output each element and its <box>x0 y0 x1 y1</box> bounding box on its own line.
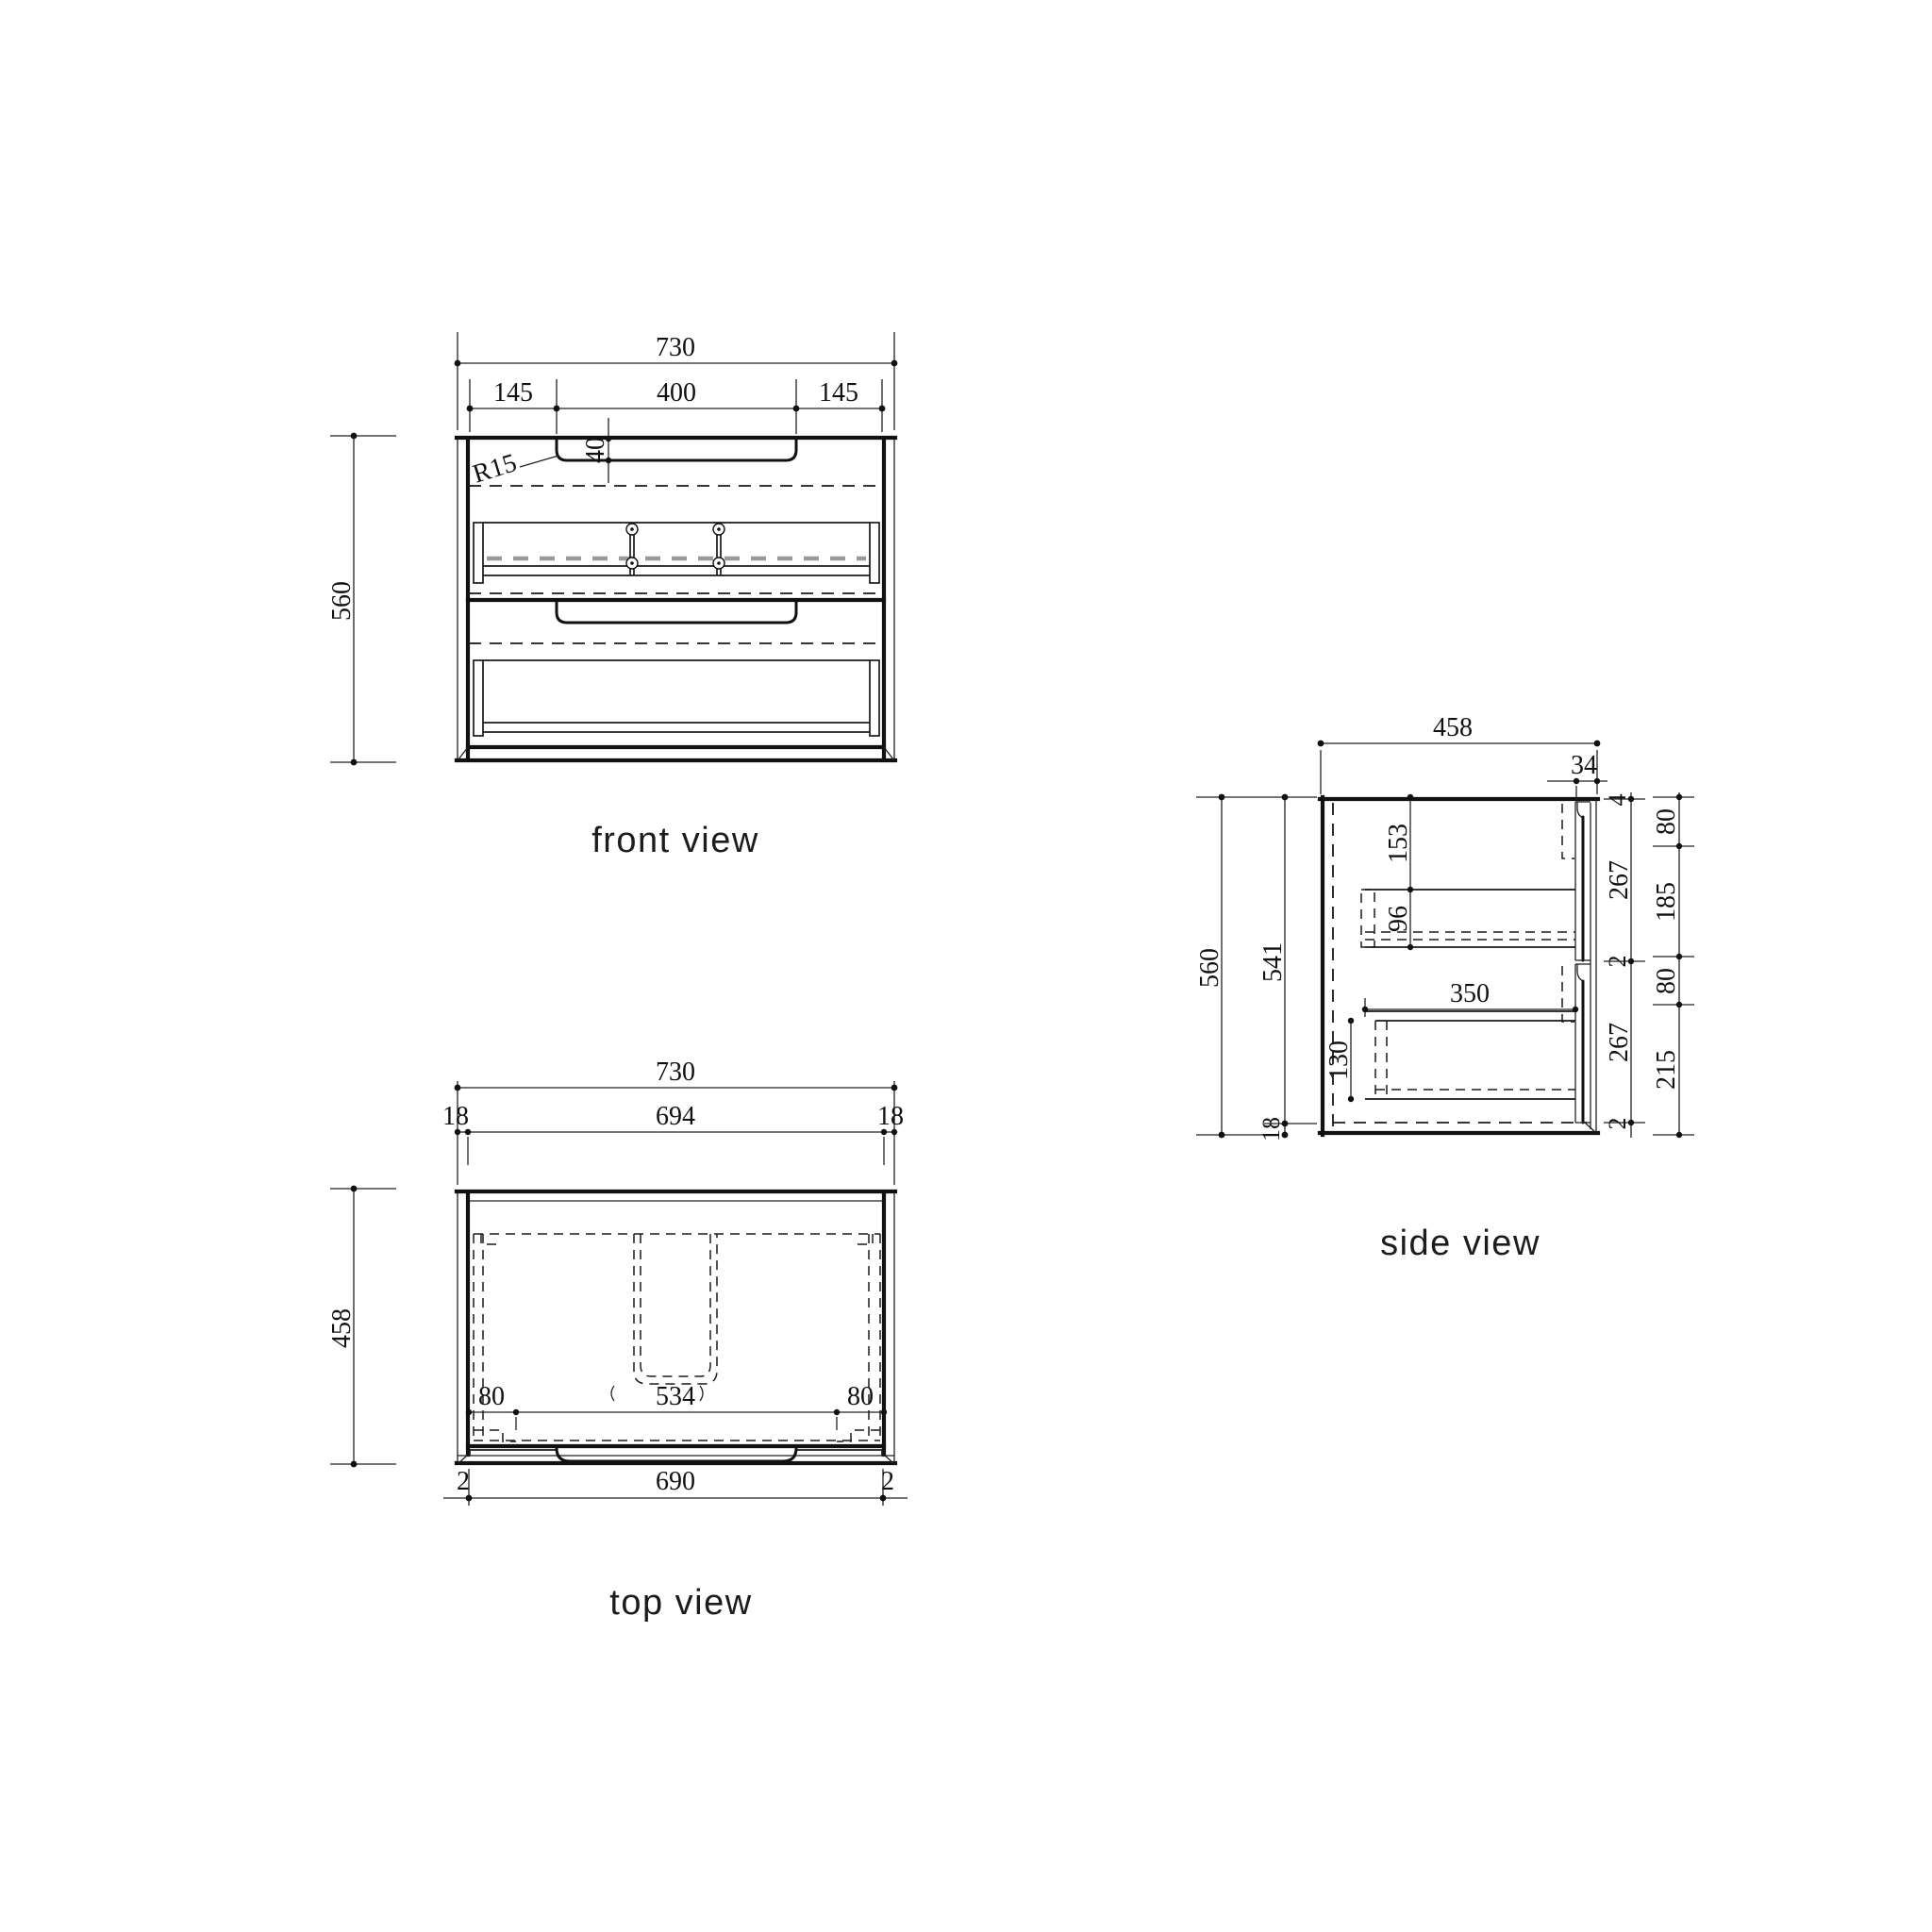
side-cabinet-outline <box>1320 797 1598 1135</box>
top-dim-depth: 458 <box>327 1308 357 1348</box>
side-dim-drawer-box-height: 130 <box>1324 1041 1354 1080</box>
side-view-label: side view <box>1380 1224 1541 1263</box>
side-dim-drawer-depth: 350 <box>1450 979 1490 1008</box>
side-dim-grip1-height: 80 <box>1652 808 1681 835</box>
top-dim-rail-left: 80 <box>478 1382 505 1411</box>
top-view: 730 18 694 18 458 80 534 80 <box>327 1058 908 1623</box>
side-dim-rail-top-offset: 153 <box>1384 824 1413 863</box>
side-dim-grip2-to-bottom: 215 <box>1652 1050 1681 1090</box>
side-drawer2-box <box>1365 1011 1575 1099</box>
side-dimensions: 458 34 560 541 18 153 96 <box>1195 713 1694 1141</box>
side-dim-overhang: 34 <box>1571 751 1597 780</box>
top-dim-edge-right: 18 <box>877 1102 904 1131</box>
top-dim-rail-right: 80 <box>847 1382 874 1411</box>
top-dimensions: 730 18 694 18 458 80 534 80 <box>327 1058 908 1506</box>
top-dim-inner-width: 694 <box>656 1102 695 1131</box>
top-dim-gap-left: 2 <box>457 1467 470 1496</box>
front-dim-recess-radius: R15 <box>470 448 521 489</box>
side-dim-depth: 458 <box>1433 713 1473 742</box>
front-view-label: front view <box>591 821 759 860</box>
side-dim-height: 560 <box>1195 948 1224 988</box>
top-dim-width: 730 <box>656 1058 695 1087</box>
side-dim-front-top-gap: 4 <box>1604 794 1631 807</box>
front-dimensions: 730 145 400 145 40 R15 560 <box>327 332 897 765</box>
side-drawer-front1 <box>1562 802 1591 960</box>
top-dim-edge-left: 18 <box>442 1102 469 1131</box>
side-dim-bottom-panel: 18 <box>1257 1117 1285 1141</box>
front-drawer2 <box>469 602 884 736</box>
top-dim-gap-right: 2 <box>881 1467 894 1496</box>
side-dim-front1-height: 267 <box>1605 860 1634 900</box>
side-dim-front-bottom-gap: 2 <box>1604 1118 1631 1130</box>
top-dim-front-width: 690 <box>656 1467 695 1496</box>
vanity-cabinet-drawing: 730 145 400 145 40 R15 560 fr <box>0 0 1932 1932</box>
front-dim-seg-right: 145 <box>819 378 858 408</box>
side-dim-grip2-height: 80 <box>1652 968 1681 994</box>
front-dim-seg-left: 145 <box>493 378 533 408</box>
front-dim-width: 730 <box>656 333 695 362</box>
top-cabinet-outline <box>457 1190 895 1463</box>
side-view: 458 34 560 541 18 153 96 <box>1195 713 1694 1263</box>
front-dim-recess-depth: 40 <box>581 437 610 463</box>
front-cabinet-outline <box>457 436 895 761</box>
side-dim-front-gap: 2 <box>1604 956 1631 968</box>
side-dim-inner-height: 541 <box>1258 942 1288 982</box>
top-view-label: top view <box>609 1583 752 1623</box>
top-drawer-front-strip <box>470 1448 882 1461</box>
technical-drawing-page: 730 145 400 145 40 R15 560 fr <box>0 0 1932 1932</box>
side-dim-rail-height: 96 <box>1384 906 1413 932</box>
front-dim-seg-center: 400 <box>657 378 696 408</box>
top-dim-center-clear: 534 <box>656 1382 695 1411</box>
screw-icon <box>626 524 724 569</box>
front-dim-height: 560 <box>327 581 357 621</box>
side-dim-between-grips: 185 <box>1652 882 1681 922</box>
front-view: 730 145 400 145 40 R15 560 fr <box>327 332 897 860</box>
front-drawer1 <box>469 440 884 593</box>
side-dim-front2-height: 267 <box>1605 1023 1634 1062</box>
